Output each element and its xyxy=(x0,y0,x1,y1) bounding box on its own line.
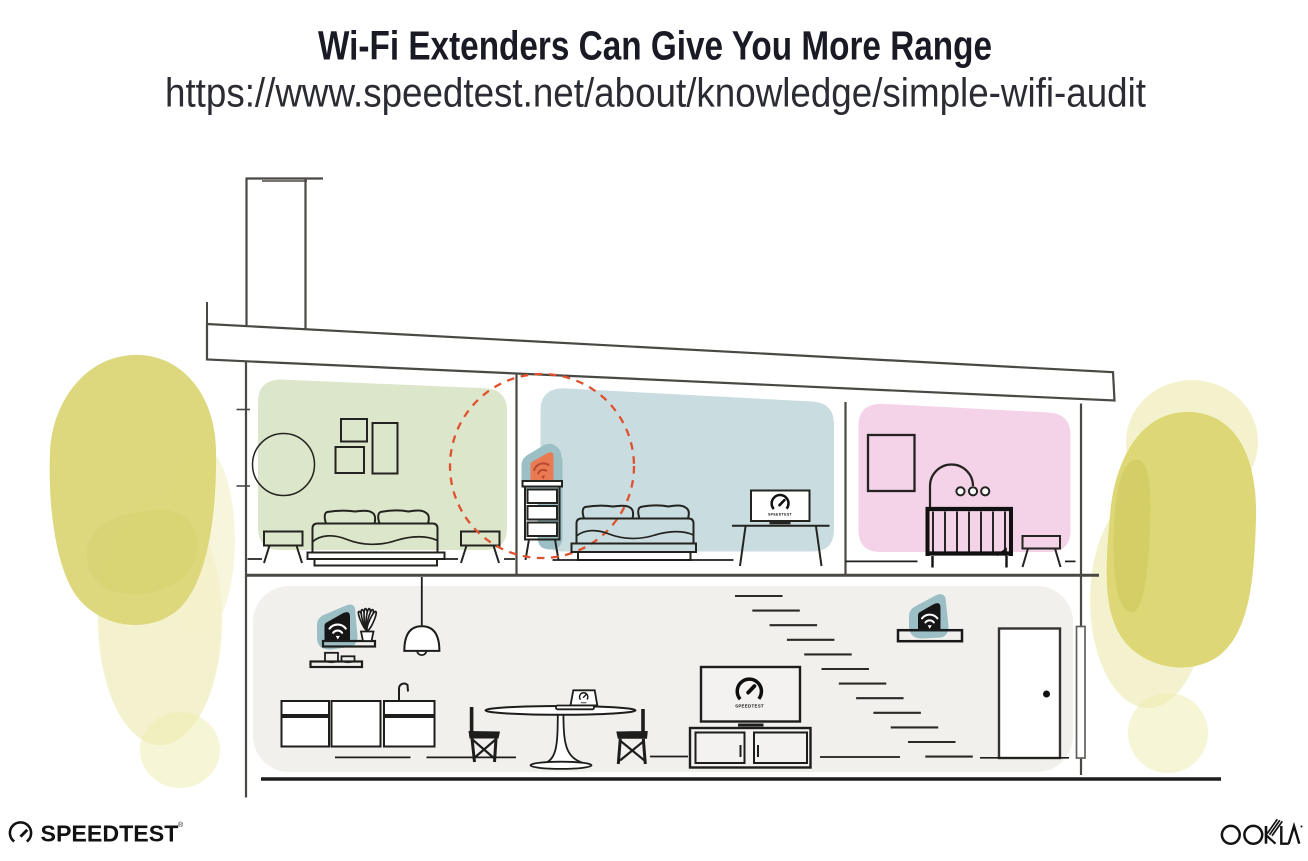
svg-text:https://www.speedtest.net/abou: https://www.speedtest.net/about/knowledg… xyxy=(165,69,1147,115)
svg-text:SPEEDTEST: SPEEDTEST xyxy=(768,513,793,517)
svg-text:SPEEDTEST: SPEEDTEST xyxy=(41,820,179,846)
svg-text:®: ® xyxy=(178,821,184,829)
svg-text:SPEEDTEST: SPEEDTEST xyxy=(735,704,764,709)
svg-text:Wi-Fi Extenders Can Give You M: Wi-Fi Extenders Can Give You More Range xyxy=(318,22,992,68)
